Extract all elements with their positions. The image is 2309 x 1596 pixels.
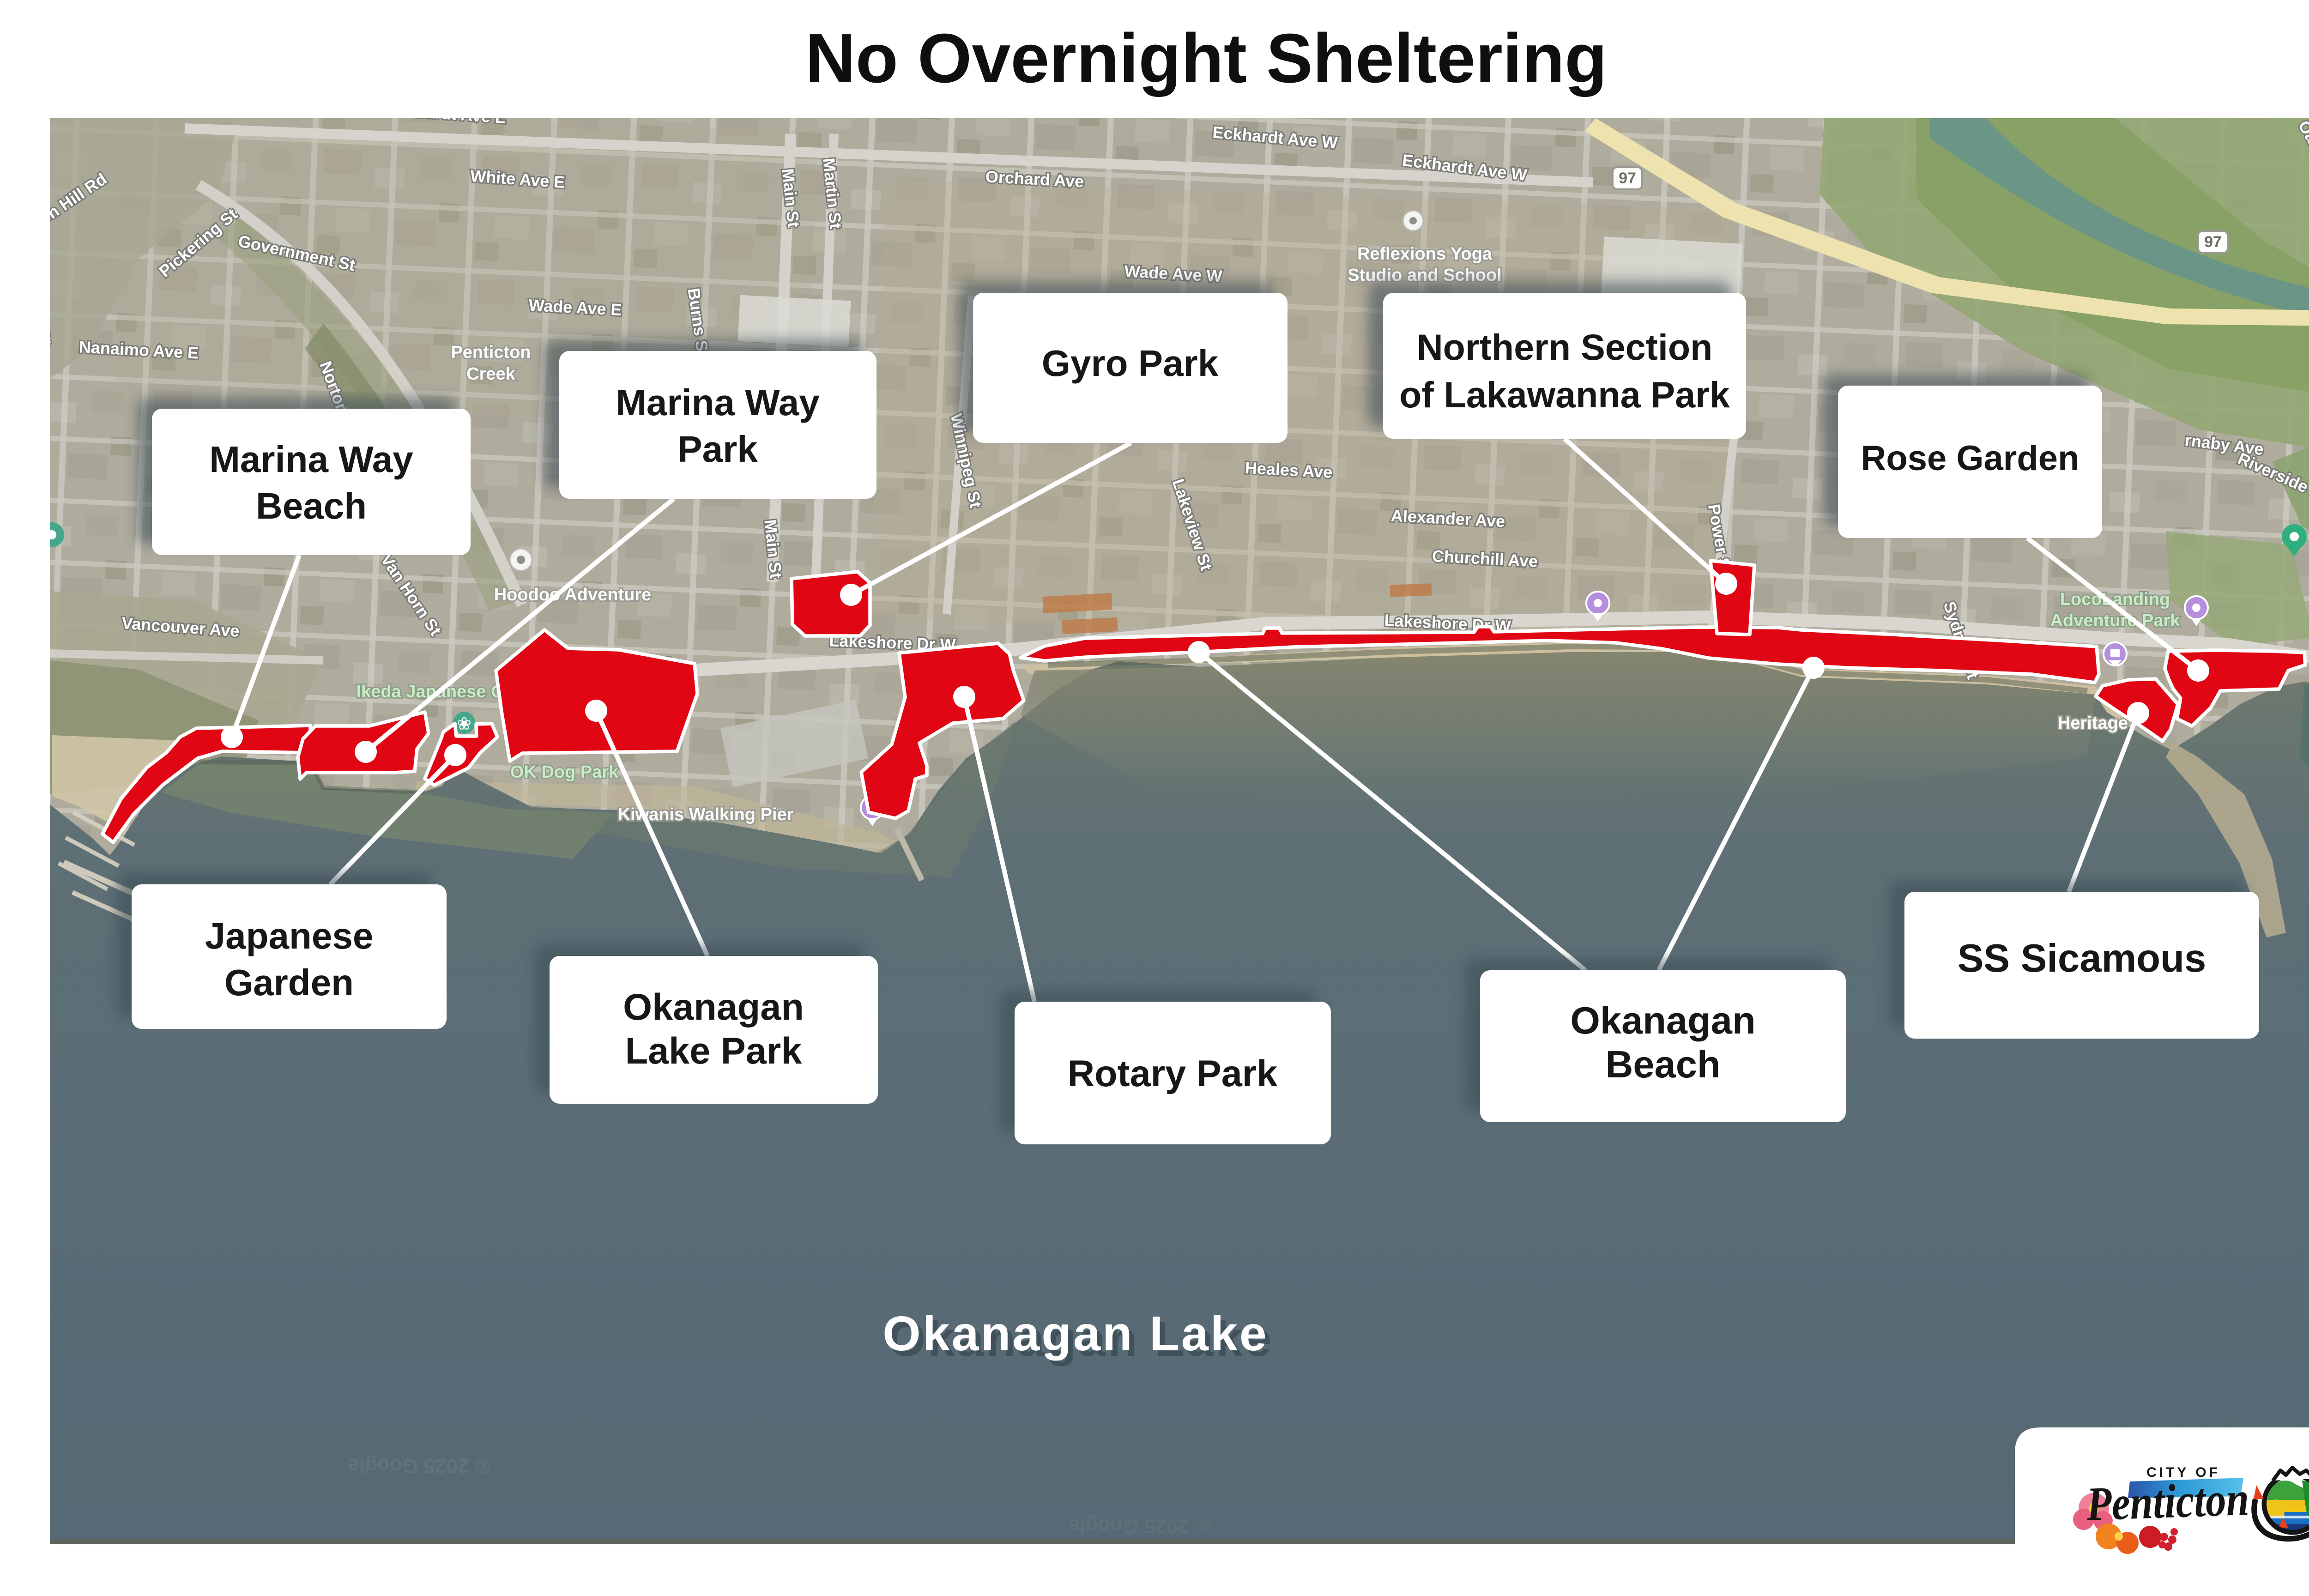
svg-text:Gyro Park: Gyro Park <box>1042 343 1219 384</box>
svg-text:❀: ❀ <box>457 714 471 734</box>
svg-text:Northern Section: Northern Section <box>1417 326 1713 368</box>
svg-text:Rose Garden: Rose Garden <box>1861 439 2079 478</box>
svg-text:Penticton: Penticton <box>2085 1472 2250 1531</box>
svg-text:Penticton: Penticton <box>451 343 531 362</box>
svg-text:© 2025 Google: © 2025 Google <box>348 1455 490 1477</box>
svg-text:Creek: Creek <box>466 364 515 384</box>
svg-text:Okanagan: Okanagan <box>1570 999 1755 1042</box>
svg-text:Okanagan Lake: Okanagan Lake <box>882 1306 1269 1361</box>
svg-text:97: 97 <box>1619 169 1636 187</box>
svg-text:Beach: Beach <box>256 485 367 526</box>
svg-text:SS Sicamous: SS Sicamous <box>1958 937 2206 980</box>
svg-text:Adventure Park: Adventure Park <box>2050 611 2181 630</box>
svg-text:No Overnight Sheltering: No Overnight Sheltering <box>805 19 1608 97</box>
svg-text:Okanagan: Okanagan <box>623 986 804 1028</box>
svg-text:Reflexions Yoga: Reflexions Yoga <box>1357 244 1493 264</box>
svg-text:Park: Park <box>677 429 758 470</box>
svg-text:97: 97 <box>2204 233 2222 251</box>
svg-text:Rotary Park: Rotary Park <box>1068 1053 1278 1094</box>
svg-text:Garden: Garden <box>224 962 354 1003</box>
svg-text:OK Dog Park: OK Dog Park <box>510 762 619 782</box>
svg-text:Heritage: Heritage <box>2058 713 2128 733</box>
svg-text:Marina Way: Marina Way <box>616 382 820 423</box>
svg-text:Lake Park: Lake Park <box>625 1030 803 1072</box>
svg-text:Japanese: Japanese <box>205 915 374 956</box>
svg-text:Beach: Beach <box>1605 1043 1720 1086</box>
svg-text:© 2025 Google: © 2025 Google <box>1069 1515 1210 1537</box>
svg-text:Marina Way: Marina Way <box>209 439 413 480</box>
svg-text:Hoodoo Adventure: Hoodoo Adventure <box>494 585 652 605</box>
svg-text:of Lakawanna Park: of Lakawanna Park <box>1399 374 1730 415</box>
